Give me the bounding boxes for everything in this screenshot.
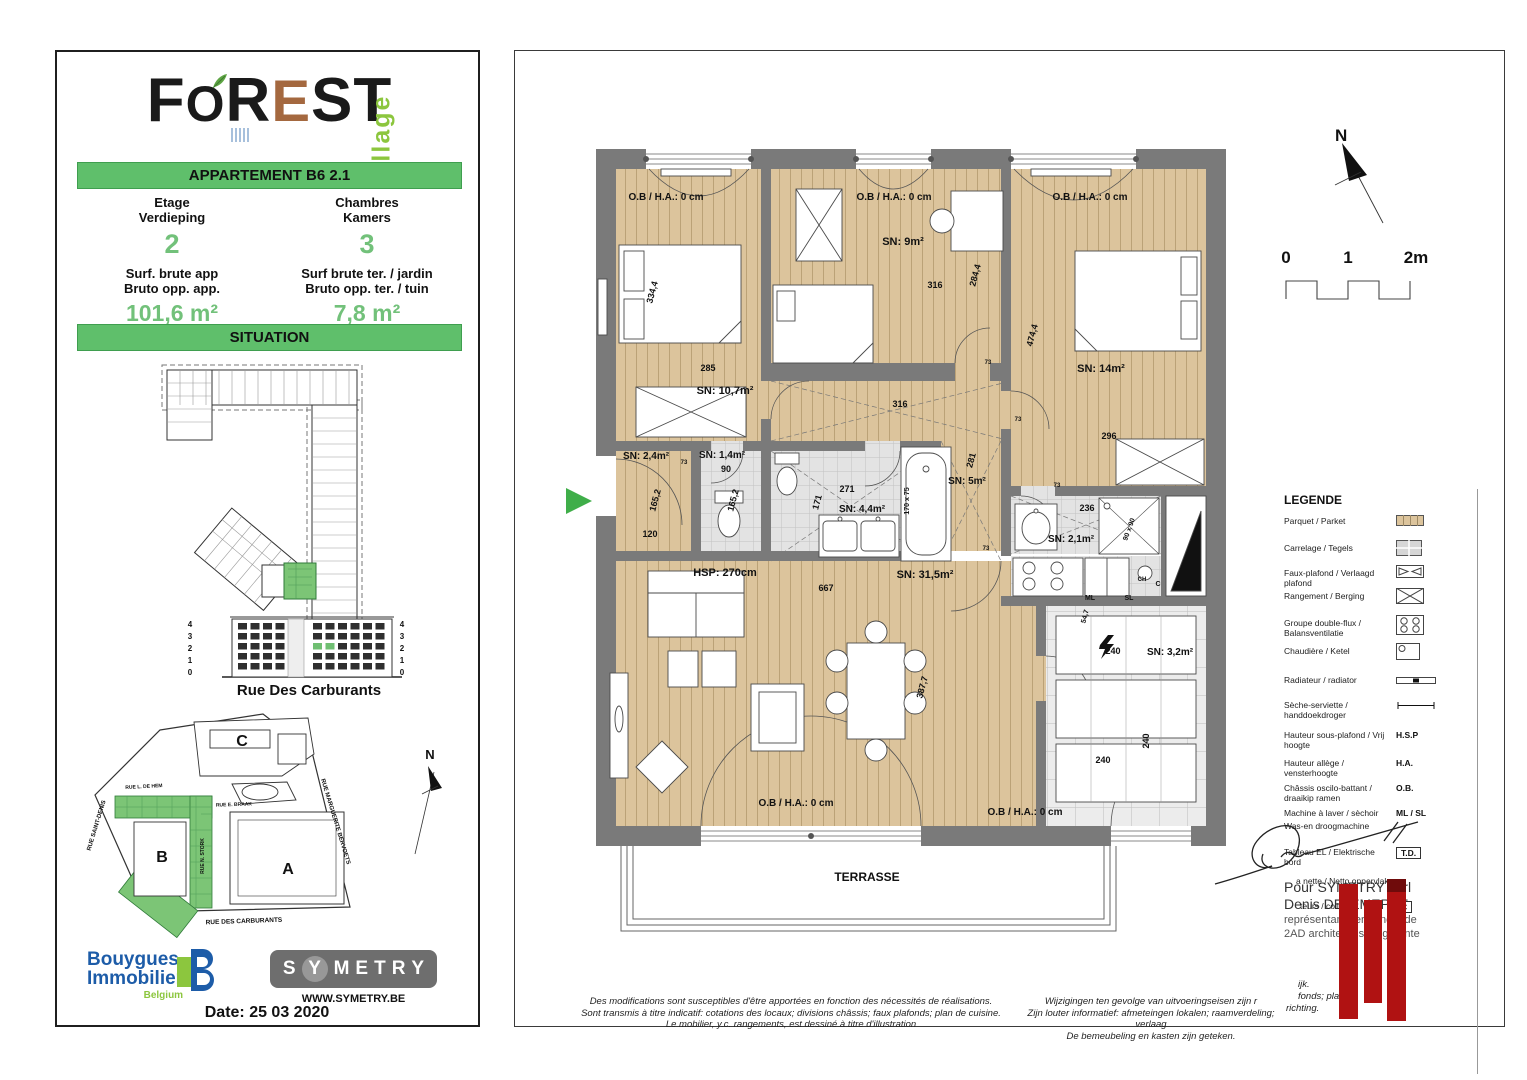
plan-label: SN: 3,2m²	[1147, 647, 1194, 658]
floor-numbers-right: 43210	[400, 620, 405, 677]
footprint-neighbor-unit	[262, 565, 284, 597]
plan-label: 240	[1105, 646, 1120, 656]
plan-label: SL	[1125, 595, 1135, 602]
rooms-label-nl: Kamers	[343, 210, 391, 225]
plan-label: 240	[1095, 755, 1110, 765]
disclaimer-fragment: fonds; plan	[1298, 991, 1344, 1002]
plan-label: SN: 10,7m²	[697, 385, 754, 397]
plan-label: 236	[1079, 503, 1094, 513]
situation-drawing: 43210 43210 Rue Des Carburants	[72, 355, 467, 703]
red-bar-3	[1387, 879, 1406, 1021]
logo-hatch-decoration	[231, 128, 251, 142]
legend-abbr: O.B.	[1396, 783, 1413, 793]
plan-label: 271	[839, 484, 854, 494]
plan-label: 4	[400, 620, 405, 629]
plan-label: 73	[983, 546, 990, 552]
legend-label-2: Was-en droogmachine	[1284, 821, 1392, 831]
disclaimer-fragment: ijk.	[1298, 979, 1310, 990]
rooms-label-fr: Chambres	[335, 195, 399, 210]
north-arrow: N	[1335, 126, 1383, 223]
symetry-letter: R	[392, 958, 406, 980]
parquet-legend-icon	[1396, 513, 1424, 531]
terrace-label-fr: Surf brute ter. / jardin	[301, 266, 432, 281]
plan-label: RUE DES CARBURANTS	[206, 917, 283, 927]
legend-label: Faux-plafond / Verlaagd plafond	[1284, 568, 1392, 588]
disclaimer-line: Sont transmis à titre indicatif: cotatio…	[571, 1008, 1011, 1020]
plan-label: 667	[818, 583, 833, 593]
floor-info: Etage Verdieping 2 Surf. brute app Bruto…	[77, 195, 267, 327]
floor-numbers-left: 43210	[188, 620, 193, 677]
legend-abbr: ML / SL	[1396, 808, 1426, 818]
plan-label: 3	[188, 632, 193, 641]
plan-label: 296	[1101, 431, 1116, 441]
plan-label: SN: 9m²	[882, 236, 924, 248]
legend-abbr: T.D.	[1396, 847, 1421, 859]
elevation-drawing	[222, 617, 402, 677]
plan-label: 73	[1054, 483, 1061, 489]
area-label-nl: Bruto opp. app.	[124, 281, 220, 296]
disclaimer-line: Zijn louter informatief: afmeteingen lok…	[1015, 1008, 1287, 1031]
symetry-letter: S	[283, 958, 296, 980]
apartment-banner: APPARTEMENT B6 2.1	[77, 162, 462, 189]
legend-title: LEGENDE	[1284, 493, 1342, 507]
legend-label: Parquet / Parket	[1284, 516, 1392, 526]
plan-label: 120	[642, 529, 657, 539]
plan-label: 90	[721, 464, 731, 474]
disclaimer-dutch: Wijzigingen ten gevolge van uitvoeringse…	[1015, 996, 1287, 1042]
plan-label: 73	[681, 460, 688, 466]
tiles-legend-icon	[1396, 540, 1422, 561]
plan-label: O.B / H.A.: 0 cm	[1052, 192, 1127, 203]
plan-label: 2	[400, 644, 405, 653]
legend-label: Machine à laver / sèchoir	[1284, 808, 1392, 818]
symetry-logo: SYMETRY	[270, 950, 437, 988]
plan-label: ML	[1085, 595, 1096, 602]
legend-label: Chaudière / Ketel	[1284, 646, 1392, 656]
logo-letter: F	[147, 66, 186, 135]
disclaimer-line: Le mobilier, y.c. rangements, est dessin…	[571, 1019, 1011, 1031]
xbox-legend-icon	[1396, 588, 1424, 609]
symetry-letter: E	[355, 958, 368, 980]
map-block-a: A	[282, 861, 294, 878]
plan-label: O.B / H.A.: 0 cm	[628, 192, 703, 203]
plan-label: HSP: 270cm	[693, 567, 757, 579]
legend-label: Carrelage / Tegels	[1284, 543, 1392, 553]
plan-label: SN: 31,5m²	[897, 569, 954, 581]
radiator-legend-icon	[1396, 672, 1436, 690]
plan-label: 73	[1015, 417, 1022, 423]
vents-legend-icon	[1396, 615, 1424, 640]
disclaimer-fragment: richting.	[1286, 1003, 1319, 1014]
disclaimer-french: Des modifications sont susceptibles d'êt…	[571, 996, 1011, 1031]
symetry-letter: M	[334, 958, 350, 980]
map-block-b: B	[156, 849, 168, 866]
map-north-arrow: N	[415, 747, 442, 854]
date-stamp: Date: 25 03 2020	[167, 1004, 367, 1022]
forest-village-logo: FOREST village	[57, 70, 482, 132]
legend-label: Sèche-serviette / handdoekdroger	[1284, 700, 1392, 720]
plan-label: 1	[188, 656, 193, 665]
plan-label: 285	[700, 363, 715, 373]
red-bar-2	[1364, 900, 1382, 1003]
plan-label: 3	[400, 632, 405, 641]
legend-label: Groupe double-flux / Balansventilatie	[1284, 618, 1392, 638]
svg-text:N: N	[1335, 126, 1347, 145]
plan-label: SN: 2,4m²	[623, 451, 670, 462]
terrace-value: 7,8 m²	[272, 300, 462, 327]
plan-label: O.B / H.A.: 0 cm	[758, 798, 833, 809]
terrace-label-nl: Bruto opp. ter. / tuin	[305, 281, 429, 296]
logo-letter: R	[226, 66, 272, 135]
plan-label: 1	[400, 656, 405, 665]
legend-abbr: H.A.	[1396, 758, 1413, 768]
disclaimer-line: De bemeubeling en kasten zijn geteken.	[1015, 1031, 1287, 1043]
street-caption: Rue Des Carburants	[237, 682, 381, 699]
plan-label: O.B / H.A.: 0 cm	[856, 192, 931, 203]
plan-label: RUE N. STORK	[200, 838, 206, 874]
plan-sheet: FOREST village APPARTEMENT B6 2.1 Etage …	[0, 0, 1527, 1080]
svg-text:N: N	[425, 747, 434, 762]
symetry-letter: T	[374, 958, 386, 980]
red-bar-1	[1339, 884, 1358, 1019]
legend-label: Hauteur allège / vensterhoogte	[1284, 758, 1392, 778]
legend-label: Hauteur sous-plafond / Vrij hoogte	[1284, 730, 1392, 750]
logo-word: FOREST	[147, 70, 392, 132]
floor-label-nl: Verdieping	[139, 210, 205, 225]
bouygues-logo: Bouygues Immobilier Belgium	[87, 950, 183, 1001]
leaf-icon	[209, 72, 229, 92]
svg-text:0: 0	[1281, 248, 1290, 267]
plan-label: SN: 4,4m²	[839, 504, 886, 515]
disclaimer-line: Wijzigingen ten gevolge van uitvoeringse…	[1015, 996, 1287, 1008]
plan-label: SN: 1,4m²	[699, 450, 746, 461]
terrace	[621, 846, 1116, 931]
bouygues-name-top: Bouygues	[87, 950, 183, 969]
svg-text:2m: 2m	[1404, 248, 1429, 267]
rooms-value: 3	[272, 229, 462, 260]
floor-label-fr: Etage	[154, 195, 189, 210]
scale-bar: 0 1 2m	[1281, 248, 1428, 299]
towel-legend-icon	[1396, 697, 1436, 715]
plan-label: 316	[892, 399, 907, 409]
logo-letter: E	[271, 69, 311, 134]
bouygues-b-icon	[175, 945, 227, 997]
plan-label: 170 x 75	[904, 487, 911, 514]
rooms-info: Chambres Kamers 3 Surf brute ter. / jard…	[272, 195, 462, 327]
bouygues-name-bottom: Immobilier	[87, 969, 183, 988]
plan-label: TERRASSE	[834, 870, 899, 884]
bowtie-legend-icon	[1396, 565, 1424, 583]
plan-label: 73	[985, 360, 992, 366]
plan-label: 2	[188, 644, 193, 653]
area-value: 101,6 m²	[77, 300, 267, 327]
legend-frame-line	[1477, 489, 1478, 1074]
legend-label: Tableau EL / Elektrische bord	[1284, 847, 1392, 867]
plan-label: SN: 5m²	[948, 476, 986, 487]
plan-label: SN: 14m²	[1077, 363, 1125, 375]
legend-label: Radiateur / radiator	[1284, 675, 1392, 685]
svg-text:1: 1	[1343, 248, 1352, 267]
entrance-arrow-icon	[566, 488, 592, 514]
plan-label: CH	[1138, 577, 1147, 583]
boiler-legend-icon	[1396, 643, 1420, 665]
legend-abbr: H.S.P	[1396, 730, 1418, 740]
legend-label: Rangement / Berging	[1284, 591, 1392, 601]
disclaimer-line: Des modifications sont susceptibles d'êt…	[571, 996, 1011, 1008]
logo-letter: S	[311, 66, 353, 135]
map-block-c: C	[236, 733, 248, 750]
plan-label: SN: 2,1m²	[1048, 534, 1095, 545]
symetry-letter: Y	[411, 958, 424, 980]
plan-label: RUE SAINT-DENIS	[87, 800, 108, 852]
plan-label: O.B / H.A.: 0 cm	[987, 807, 1062, 818]
plan-label: 316	[927, 280, 942, 290]
plan-label: RUE E. BRAAK	[216, 801, 253, 808]
plan-label: 4	[188, 620, 193, 629]
plan-label: 240	[1141, 733, 1151, 748]
info-panel: FOREST village APPARTEMENT B6 2.1 Etage …	[55, 50, 480, 1027]
symetry-letter: Y	[302, 956, 328, 982]
area-label-fr: Surf. brute app	[126, 266, 218, 281]
floor-value: 2	[77, 229, 267, 260]
floorplan-panel: N 0 1 2m O.B / H.A.: 0 cmO.B /	[514, 50, 1505, 1027]
footprint-highlighted-unit	[284, 563, 316, 599]
plan-label: C	[1155, 581, 1160, 588]
plan-label: 0	[400, 668, 405, 677]
legend-label: Châssis oscilo-battant / draaikip ramen	[1284, 783, 1392, 803]
bouygues-country: Belgium	[87, 990, 183, 1001]
site-map: RUE SAINT-DENISRUE L. DE HEMRUE E. BRAAK…	[82, 704, 472, 949]
situation-banner: SITUATION	[77, 324, 462, 351]
plan-label: 0	[188, 668, 193, 677]
